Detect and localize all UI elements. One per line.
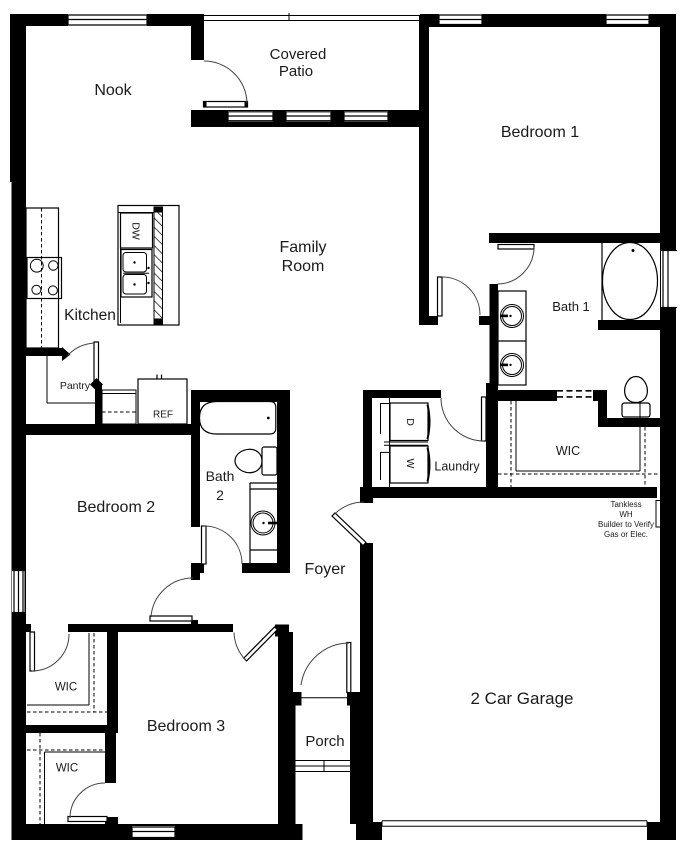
svg-text:2: 2 <box>216 487 224 503</box>
svg-text:Covered: Covered <box>270 46 327 63</box>
svg-text:Room: Room <box>282 258 325 275</box>
svg-text:D: D <box>404 418 416 426</box>
svg-text:Gas or Elec.: Gas or Elec. <box>604 530 648 539</box>
svg-text:W: W <box>404 459 416 469</box>
svg-text:WIC: WIC <box>55 682 77 694</box>
svg-text:Kitchen: Kitchen <box>64 307 116 324</box>
svg-text:Builder to Verify: Builder to Verify <box>598 520 654 529</box>
svg-text:REF: REF <box>153 410 173 421</box>
svg-text:Bedroom 1: Bedroom 1 <box>501 124 579 141</box>
svg-text:Bedroom 3: Bedroom 3 <box>147 718 225 735</box>
svg-text:Bedroom 2: Bedroom 2 <box>77 499 155 516</box>
svg-text:Tankless: Tankless <box>610 500 641 509</box>
svg-text:Bath: Bath <box>206 468 235 484</box>
svg-text:WH: WH <box>619 510 633 519</box>
svg-text:Pantry: Pantry <box>60 380 91 392</box>
svg-text:Foyer: Foyer <box>305 561 347 578</box>
svg-text:Patio: Patio <box>279 63 313 80</box>
svg-text:WIC: WIC <box>56 763 78 775</box>
svg-text:Nook: Nook <box>94 82 132 99</box>
svg-text:DW: DW <box>130 222 142 240</box>
svg-text:Laundry: Laundry <box>434 460 480 474</box>
svg-text:2 Car Garage: 2 Car Garage <box>471 689 574 708</box>
svg-text:Porch: Porch <box>305 733 344 750</box>
svg-text:WIC: WIC <box>556 444 580 458</box>
svg-text:Family: Family <box>279 239 326 256</box>
svg-text:Bath 1: Bath 1 <box>552 299 590 314</box>
